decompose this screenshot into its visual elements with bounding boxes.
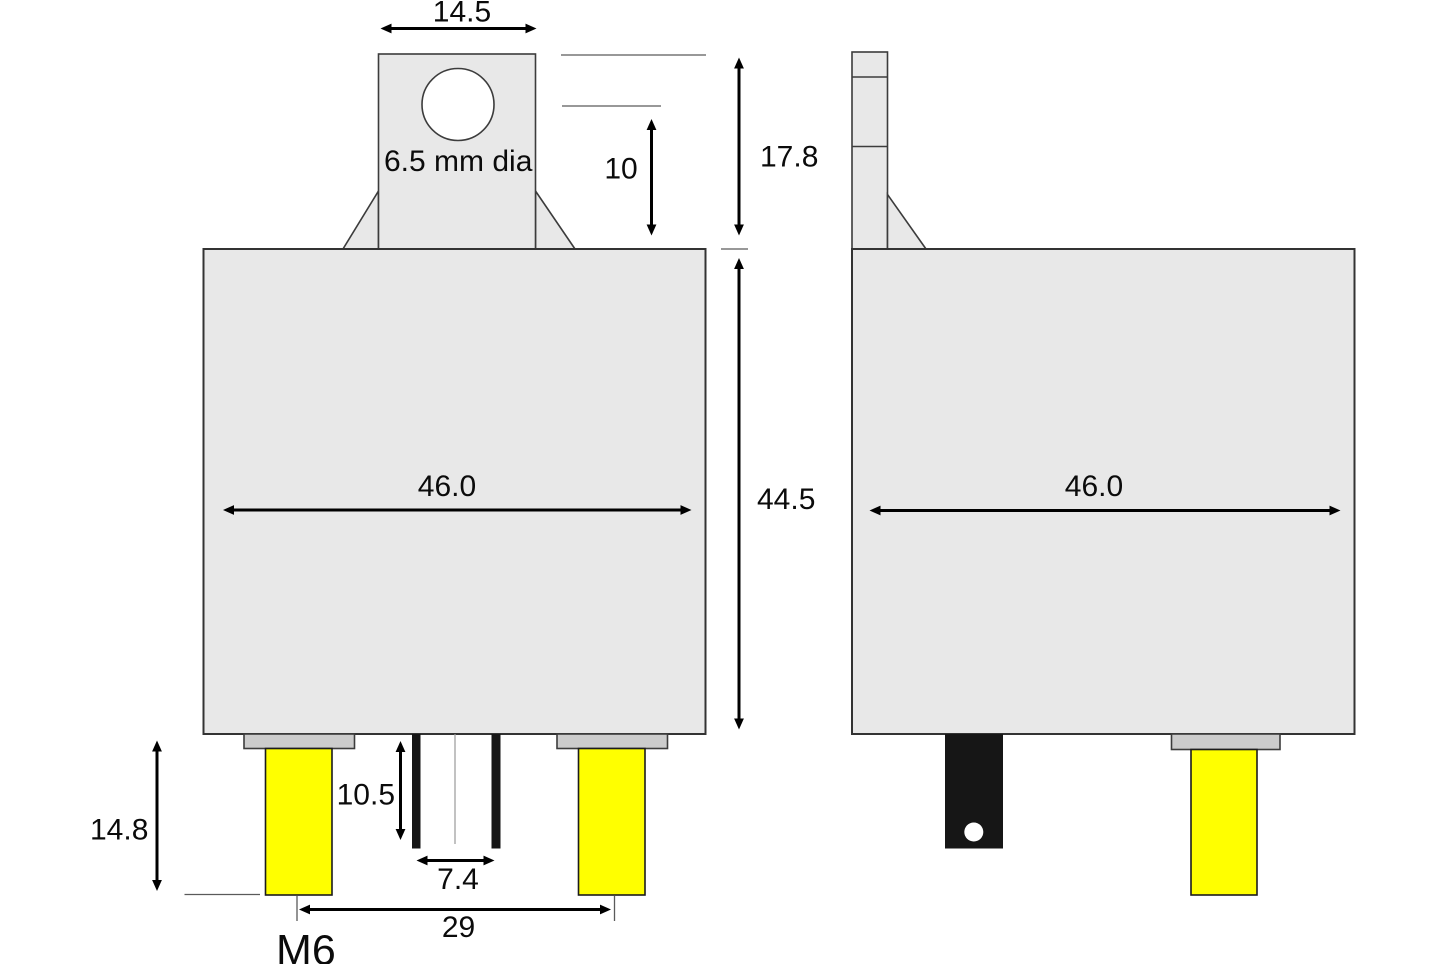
svg-text:10.5: 10.5 <box>337 779 395 812</box>
svg-text:29: 29 <box>442 911 475 944</box>
svg-text:14.5: 14.5 <box>433 0 491 29</box>
svg-text:14.8: 14.8 <box>90 814 148 847</box>
svg-text:6.5 mm dia: 6.5 mm dia <box>384 145 533 178</box>
svg-text:7.4: 7.4 <box>437 863 479 896</box>
svg-text:46.0: 46.0 <box>1065 470 1123 503</box>
svg-text:17.8: 17.8 <box>760 141 818 174</box>
svg-text:M6: M6 <box>276 927 336 964</box>
svg-text:44.5: 44.5 <box>757 483 815 516</box>
svg-text:10: 10 <box>604 153 637 186</box>
svg-text:46.0: 46.0 <box>418 470 476 503</box>
